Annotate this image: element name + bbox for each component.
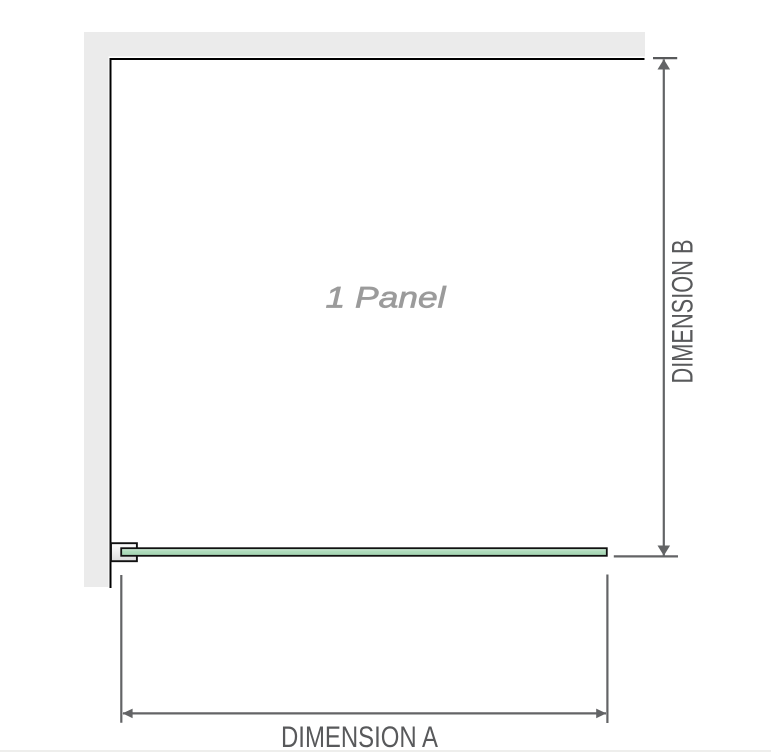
svg-text:DIMENSION B: DIMENSION B [666,240,699,384]
svg-text:1 Panel: 1 Panel [326,281,448,314]
svg-text:DIMENSION A: DIMENSION A [281,721,438,754]
